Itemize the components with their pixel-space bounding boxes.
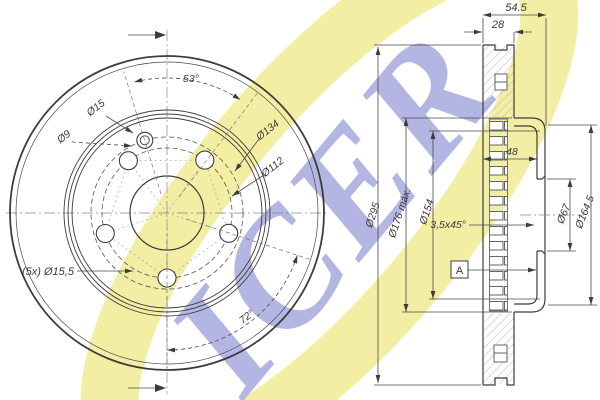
chamfer-label: 3,5x45° xyxy=(430,219,466,231)
dim-67-label: Ø67 xyxy=(554,201,573,226)
dim-28-label: 28 xyxy=(491,19,505,31)
angle-53-label: 53° xyxy=(183,73,199,85)
datum-label: A xyxy=(456,265,464,277)
bolt-hole-circle xyxy=(220,224,238,242)
bolt-hole-circle xyxy=(119,152,137,170)
angle-53-radial xyxy=(179,93,257,197)
dim-295-label: Ø295 xyxy=(363,201,383,230)
vane-slot xyxy=(495,74,507,90)
pin-circle-label: Ø134 xyxy=(253,118,282,144)
dim-48-label: 48 xyxy=(506,146,518,158)
bolt-hole-circle xyxy=(196,151,214,169)
dim-1645-label: Ø164.5 xyxy=(573,194,597,232)
pin-id-leader xyxy=(72,142,132,146)
dim-545-label: 54.5 xyxy=(505,2,527,14)
dim-176-label: Ø176 máx. xyxy=(386,187,414,241)
bolt-hole-circle xyxy=(96,225,114,243)
section-cut-arrow-bottom xyxy=(128,384,166,392)
bolt-circle-label: Ø112 xyxy=(258,155,286,181)
vane-column xyxy=(490,119,508,311)
angle-72-arc xyxy=(167,255,297,350)
bolt-holes-label: (5x) Ø15,5 xyxy=(22,266,75,278)
section-cut-arrow-top xyxy=(128,31,166,39)
angle-72-label: 72° xyxy=(237,307,257,326)
pin-id-label: Ø9 xyxy=(54,128,73,147)
pin-od-label: Ø15 xyxy=(84,97,108,119)
front-view: 53° 72° Ø15 Ø9 Ø134 Ø112 (5x) Ø15,5 xyxy=(6,30,328,394)
bolt-circle-leader xyxy=(232,175,264,196)
vane-slot xyxy=(494,345,507,362)
drawing-canvas: ICER xyxy=(0,0,600,400)
pin-circle-leader xyxy=(235,139,259,171)
technical-drawing: 53° 72° Ø15 Ø9 Ø134 Ø112 (5x) Ø15,5 xyxy=(0,0,600,400)
angle-72-radial xyxy=(186,219,310,259)
angle-53-radial xyxy=(124,72,161,195)
section-view: 54.5 28 48 Ø295 Ø176 máx. Ø154 xyxy=(363,2,597,385)
